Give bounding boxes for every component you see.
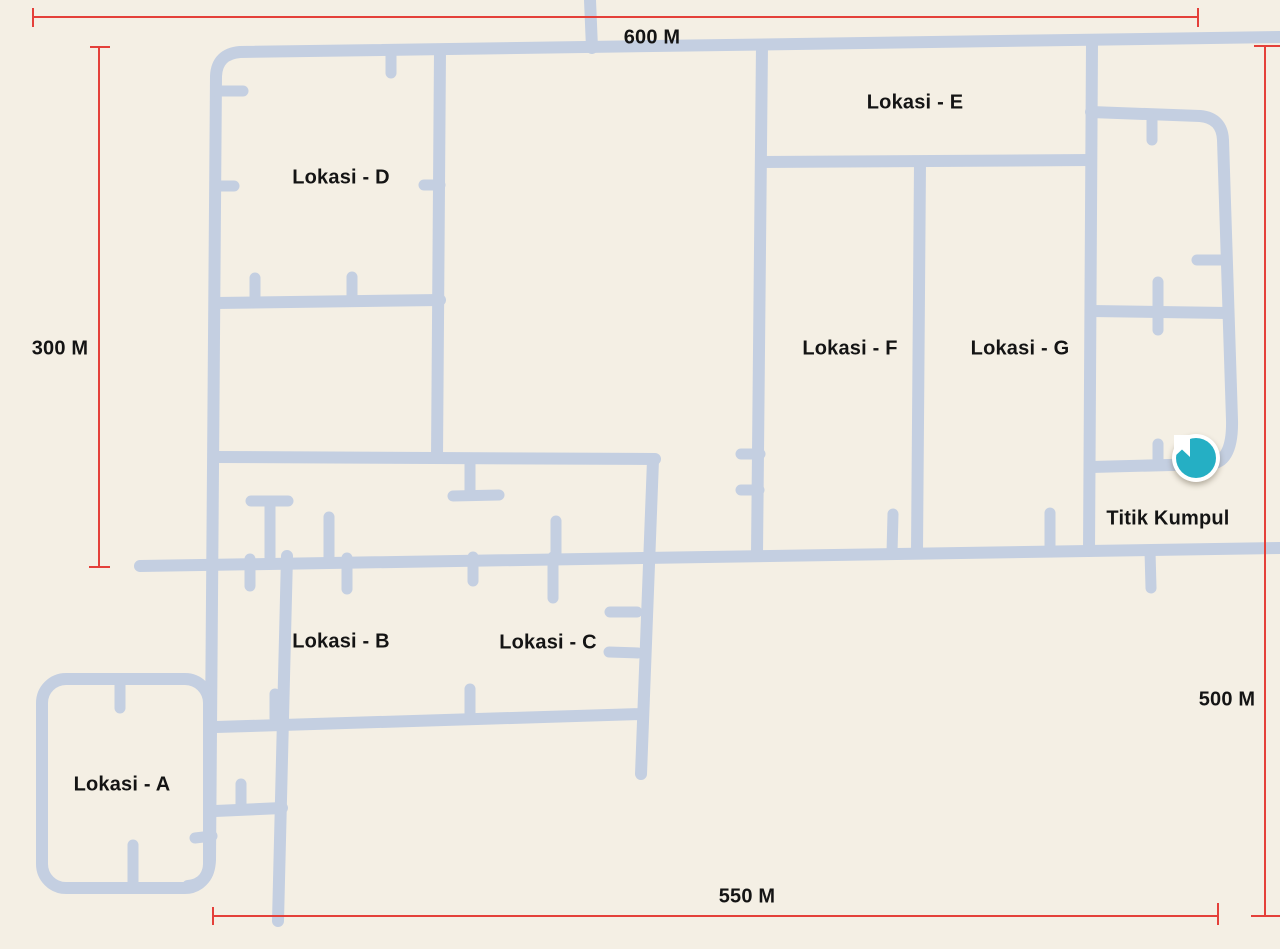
road-e-bottom [762,160,1091,162]
road-stub [609,652,638,653]
road-top-edge-stub [590,0,592,48]
dimension-line-right [1251,46,1280,916]
road-stub [1150,551,1151,588]
road-mid-horizontal [215,457,655,459]
label-lokasi-a: Lokasi - A [74,774,171,797]
label-lokasi-c: Lokasi - C [499,632,597,655]
road-a-branch [215,808,282,811]
measurement-left-label: 300 M [32,338,89,361]
label-lokasi-f: Lokasi - F [802,338,897,361]
road-fg-divider [917,163,920,552]
road-stub [251,501,288,557]
measurement-right-label: 500 M [1199,689,1256,712]
label-lokasi-g: Lokasi - G [971,338,1070,361]
road-g-right-vertical [1089,44,1092,551]
road-stub [453,459,499,496]
road-vertical-d-right [437,51,440,458]
dimension-line-top [33,8,1198,27]
dimension-line-bottom [213,903,1218,925]
road-b-left-vertical [278,556,287,921]
map-canvas: Lokasi - A Lokasi - B Lokasi - C Lokasi … [0,0,1280,949]
dimension-line-left [89,47,110,567]
road-network [0,0,1280,949]
titik-kumpul-label: Titik Kumpul [1106,508,1229,531]
road-c-right-vertical [641,460,653,774]
label-lokasi-d: Lokasi - D [292,167,390,190]
road-main-horizontal [140,548,1280,566]
road-stub [892,514,893,553]
label-lokasi-e: Lokasi - E [867,92,963,115]
label-lokasi-b: Lokasi - B [292,631,390,654]
road-ef-left-vertical [757,45,762,554]
measurement-bottom-label: 550 M [719,886,776,909]
titik-kumpul-marker[interactable] [1172,434,1220,482]
bookmark-icon [1176,438,1216,478]
measurement-top-label: 600 M [624,27,681,50]
road-a-notch [195,836,212,838]
